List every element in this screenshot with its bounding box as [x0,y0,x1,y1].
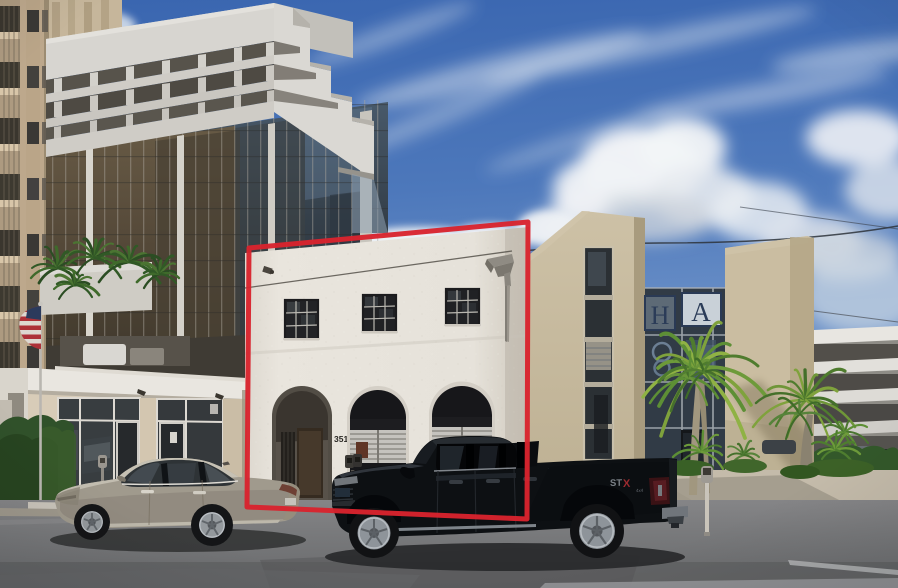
svg-text:A: A [691,297,711,327]
svg-text:4x4: 4x4 [636,488,644,493]
svg-text:351: 351 [334,434,348,444]
svg-text:X: X [623,478,631,490]
svg-text:ST: ST [610,478,623,489]
svg-text:H: H [651,301,670,330]
